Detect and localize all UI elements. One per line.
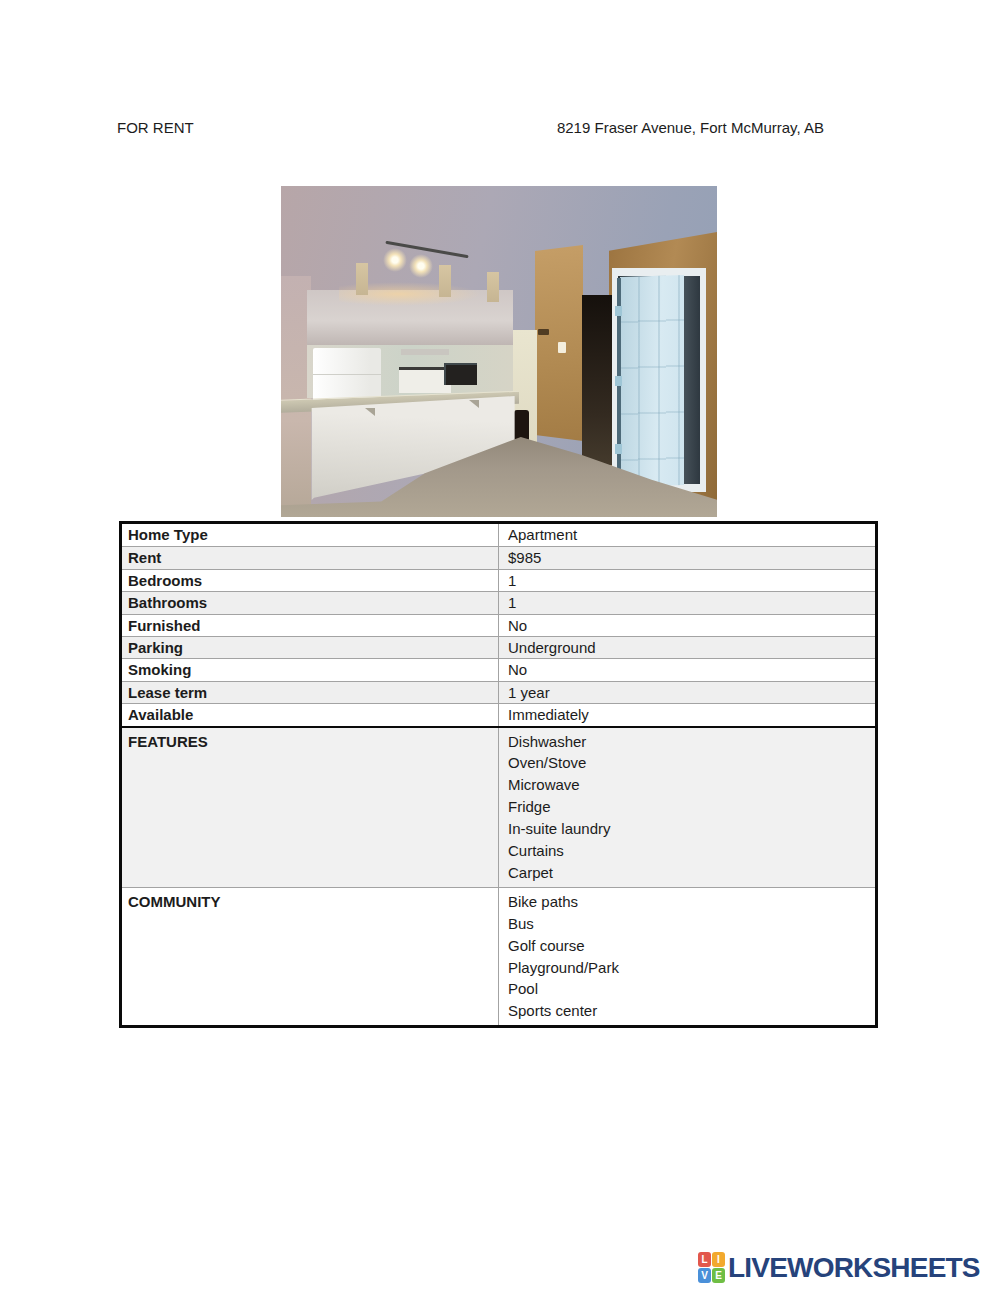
row-value: $985	[498, 547, 875, 568]
row-label: Rent	[122, 547, 498, 568]
photo-range-hood	[401, 349, 449, 355]
feature-item: Curtains	[508, 840, 866, 862]
photo-boots	[514, 410, 529, 440]
row-value: 1	[498, 570, 875, 591]
address-text: 8219 Fraser Avenue, Fort McMurray, AB	[557, 119, 824, 136]
section-values: Dishwasher Oven/Stove Microwave Fridge I…	[498, 728, 875, 887]
community-item: Pool	[508, 978, 866, 1000]
photo-dark-doorway	[582, 295, 612, 465]
table-row: Rent $985	[122, 546, 875, 568]
row-value: No	[498, 615, 875, 636]
photo-open-door	[620, 275, 684, 487]
table-row: Bathrooms 1	[122, 591, 875, 613]
listing-table: Home Type Apartment Rent $985 Bedrooms 1…	[119, 521, 878, 1028]
section-label: COMMUNITY	[122, 888, 498, 1025]
logo-wordmark: LIVEWORKSHEETS	[728, 1252, 980, 1283]
photo-door-hinge	[615, 444, 622, 454]
feature-item: Fridge	[508, 796, 866, 818]
row-value: Immediately	[498, 704, 875, 725]
liveworksheets-logo: L I V E LIVEWORKSHEETS	[698, 1252, 980, 1283]
community-item: Playground/Park	[508, 957, 866, 979]
feature-item: Oven/Stove	[508, 752, 866, 774]
section-values: Bike paths Bus Golf course Playground/Pa…	[498, 888, 875, 1025]
table-row: Furnished No	[122, 614, 875, 636]
photo-door-hinge	[615, 306, 622, 316]
table-row: Lease term 1 year	[122, 681, 875, 703]
row-label: Furnished	[122, 615, 498, 636]
row-value: 1	[498, 592, 875, 613]
table-row: Bedrooms 1	[122, 569, 875, 591]
table-row: Smoking No	[122, 658, 875, 680]
logo-tile-v: V	[698, 1268, 711, 1283]
community-item: Bus	[508, 913, 866, 935]
logo-tile-e: E	[712, 1268, 725, 1283]
feature-item: In-suite laundry	[508, 818, 866, 840]
photo-soffit-column	[356, 263, 368, 295]
row-label: Bathrooms	[122, 592, 498, 613]
table-row: Parking Underground	[122, 636, 875, 658]
feature-item: Carpet	[508, 862, 866, 884]
row-value: 1 year	[498, 682, 875, 703]
liveworksheets-logo-icon: L I V E	[698, 1252, 725, 1283]
community-item: Sports center	[508, 1000, 866, 1022]
photo-thermostat	[538, 329, 549, 335]
row-value: No	[498, 659, 875, 680]
community-item: Bike paths	[508, 891, 866, 913]
community-item: Golf course	[508, 935, 866, 957]
for-rent-label: FOR RENT	[117, 119, 194, 136]
logo-tile-i: I	[712, 1252, 725, 1267]
photo-track-lamp	[409, 254, 433, 278]
row-label: Parking	[122, 637, 498, 658]
table-row: Home Type Apartment	[122, 524, 875, 546]
worksheet-page: FOR RENT 8219 Fraser Avenue, Fort McMurr…	[0, 0, 1000, 1291]
community-section-row: COMMUNITY Bike paths Bus Golf course Pla…	[122, 887, 875, 1025]
row-value: Underground	[498, 637, 875, 658]
photo-outlet	[558, 342, 566, 353]
logo-tile-l: L	[698, 1252, 711, 1267]
row-value: Apartment	[498, 524, 875, 546]
row-label: Lease term	[122, 682, 498, 703]
row-label: Available	[122, 704, 498, 725]
features-section-row: FEATURES Dishwasher Oven/Stove Microwave…	[122, 726, 875, 887]
row-label: Home Type	[122, 524, 498, 546]
row-label: Smoking	[122, 659, 498, 680]
photo-microwave	[444, 363, 477, 385]
section-label: FEATURES	[122, 728, 498, 887]
feature-item: Microwave	[508, 774, 866, 796]
photo-track-lamp	[383, 248, 407, 272]
row-label: Bedrooms	[122, 570, 498, 591]
feature-item: Dishwasher	[508, 731, 866, 753]
table-row: Available Immediately	[122, 703, 875, 725]
listing-photo	[281, 186, 717, 517]
photo-door-hinge	[615, 376, 622, 386]
photo-soffit-column	[487, 272, 499, 302]
photo-soffit-column	[439, 265, 451, 297]
photo-fridge-door-line	[313, 374, 381, 375]
